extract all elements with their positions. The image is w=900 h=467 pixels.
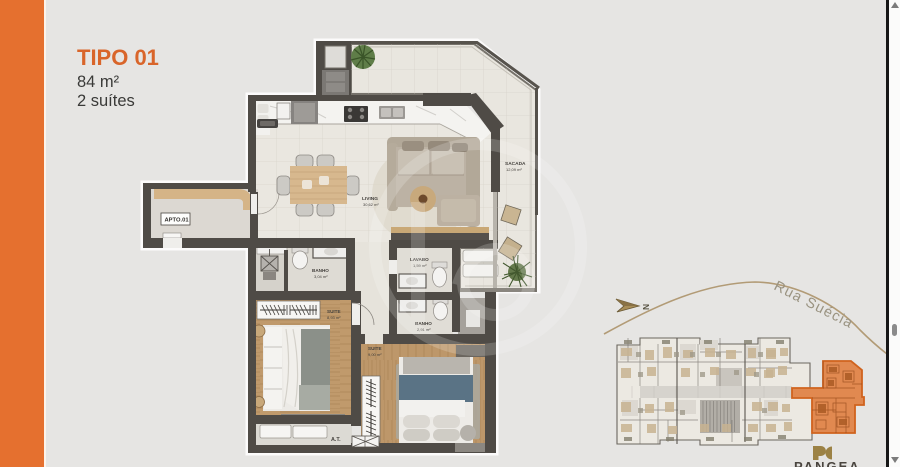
svg-text:SUITE: SUITE: [368, 346, 382, 351]
svg-text:PANGEA: PANGEA: [794, 459, 861, 467]
svg-text:N: N: [641, 304, 651, 310]
svg-text:8,93 m²: 8,93 m²: [327, 315, 341, 320]
svg-text:Rua Suécia: Rua Suécia: [771, 278, 856, 332]
svg-text:APTO.01: APTO.01: [165, 218, 190, 224]
svg-text:9,00 m²: 9,00 m²: [368, 352, 382, 357]
svg-text:SUITE: SUITE: [327, 309, 341, 314]
svg-text:3,04 m²: 3,04 m²: [314, 274, 328, 279]
svg-text:12,09 m²: 12,09 m²: [506, 167, 522, 172]
svg-text:BANHO: BANHO: [312, 268, 329, 273]
svg-text:A.T.: A.T.: [331, 437, 341, 443]
